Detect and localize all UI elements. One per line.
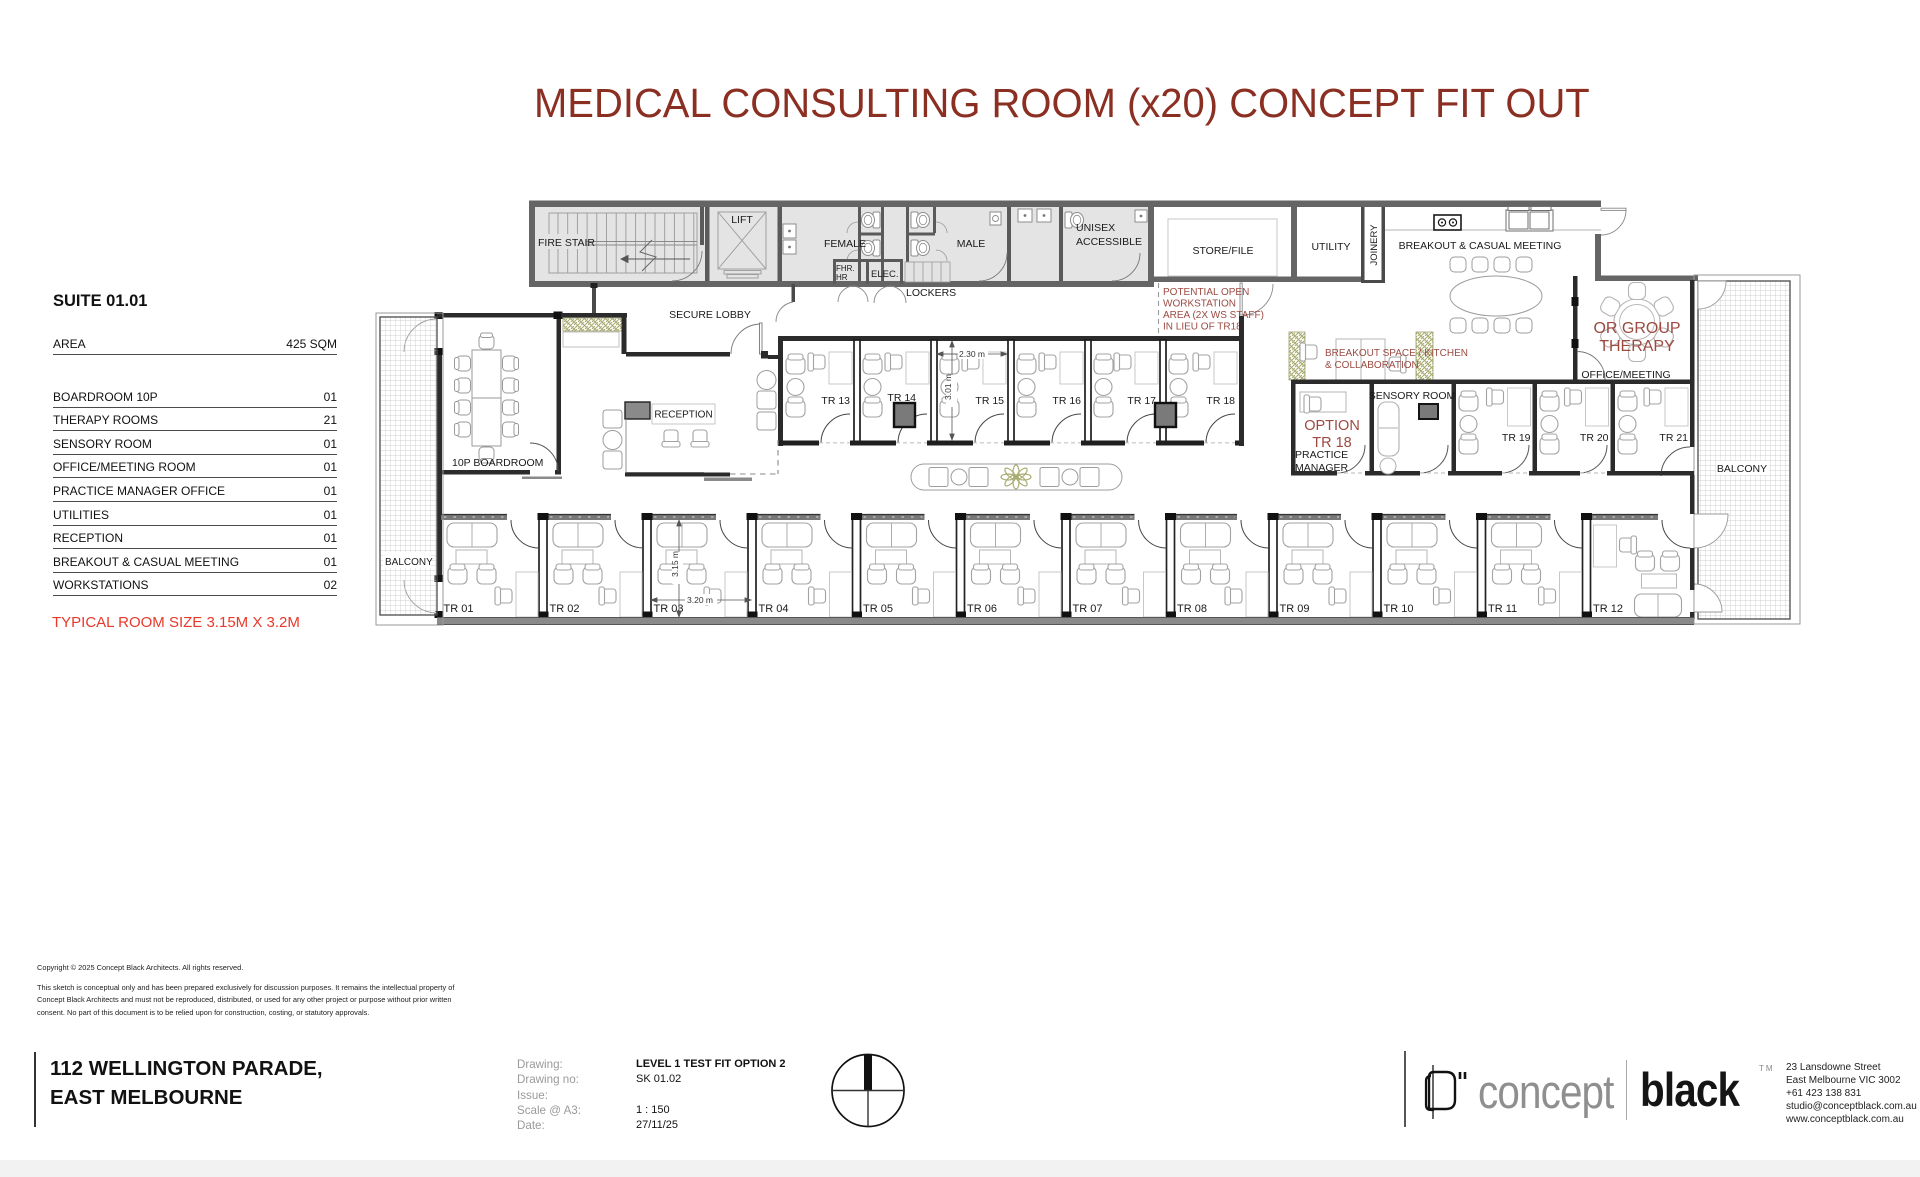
svg-text:BREAKOUT & CASUAL MEETING: BREAKOUT & CASUAL MEETING: [1399, 240, 1562, 252]
svg-text:SENSORY ROOM: SENSORY ROOM: [1369, 390, 1456, 402]
svg-text:TR 11: TR 11: [1488, 603, 1517, 615]
svg-text:MALE: MALE: [957, 238, 986, 250]
svg-text:TR 16: TR 16: [1052, 395, 1081, 407]
svg-text:UNISEX: UNISEX: [1076, 222, 1115, 234]
svg-text:ACCESSIBLE: ACCESSIBLE: [1076, 236, 1142, 248]
svg-text:JOINERY: JOINERY: [1369, 224, 1380, 266]
svg-text:OPTION: OPTION: [1304, 418, 1360, 434]
svg-text:TR 06: TR 06: [967, 603, 997, 615]
svg-text:OFFICE/MEETING: OFFICE/MEETING: [1581, 369, 1670, 381]
svg-text:PRACTICE: PRACTICE: [1295, 449, 1348, 461]
svg-text:TR 21: TR 21: [1659, 432, 1688, 444]
svg-text:TR 19: TR 19: [1502, 432, 1531, 444]
svg-text:BALCONY: BALCONY: [385, 557, 433, 568]
svg-text:LIFT: LIFT: [731, 214, 753, 226]
svg-text:BREAKOUT SPACE / KITCHEN: BREAKOUT SPACE / KITCHEN: [1325, 348, 1468, 359]
svg-text:FEMALE: FEMALE: [824, 238, 866, 250]
svg-text:UTILITY: UTILITY: [1311, 241, 1350, 253]
svg-text:TR 15: TR 15: [975, 395, 1004, 407]
svg-text:TR 07: TR 07: [1073, 603, 1103, 615]
svg-text:3.01 m: 3.01 m: [943, 374, 953, 400]
svg-text:AREA (2X WS STAFF): AREA (2X WS STAFF): [1163, 310, 1264, 321]
svg-text:TR 12: TR 12: [1593, 603, 1623, 615]
svg-text:TR 10: TR 10: [1384, 603, 1414, 615]
svg-text:TR 08: TR 08: [1177, 603, 1207, 615]
svg-text:& COLLABORATION: & COLLABORATION: [1325, 360, 1419, 371]
svg-text:THERAPY: THERAPY: [1599, 338, 1675, 355]
svg-text:3.20 m: 3.20 m: [687, 595, 713, 605]
svg-text:SECURE LOBBY: SECURE LOBBY: [669, 309, 751, 321]
svg-text:OR GROUP: OR GROUP: [1593, 320, 1680, 337]
svg-text:STORE/FILE: STORE/FILE: [1192, 245, 1253, 257]
svg-text:TR 01: TR 01: [444, 603, 474, 615]
svg-text:10P BOARDROOM: 10P BOARDROOM: [452, 457, 543, 469]
svg-text:WORKSTATION: WORKSTATION: [1163, 299, 1236, 310]
svg-text:TR 14: TR 14: [887, 392, 916, 404]
svg-text:TR 04: TR 04: [759, 603, 789, 615]
svg-text:TR 13: TR 13: [821, 395, 850, 407]
svg-text:BALCONY: BALCONY: [1717, 463, 1767, 475]
svg-text:POTENTIAL OPEN: POTENTIAL OPEN: [1163, 287, 1249, 298]
svg-text:TR 05: TR 05: [863, 603, 893, 615]
svg-text:IN LIEU OF TR18: IN LIEU OF TR18: [1163, 322, 1242, 333]
svg-text:HR: HR: [836, 273, 848, 282]
svg-text:TR 09: TR 09: [1280, 603, 1310, 615]
svg-text:TR 17: TR 17: [1127, 395, 1156, 407]
svg-text:FHR.: FHR.: [836, 264, 855, 273]
svg-text:LOCKERS: LOCKERS: [906, 287, 956, 299]
svg-text:TR 02: TR 02: [550, 603, 580, 615]
svg-text:TR 20: TR 20: [1580, 432, 1609, 444]
svg-text:FIRE STAIR: FIRE STAIR: [538, 237, 595, 249]
svg-text:3.15 m: 3.15 m: [670, 551, 680, 577]
svg-text:ELEC.: ELEC.: [871, 269, 898, 280]
svg-text:MANAGER: MANAGER: [1295, 462, 1349, 474]
svg-text:RECEPTION: RECEPTION: [654, 410, 712, 421]
svg-text:TR 18: TR 18: [1206, 395, 1235, 407]
svg-text:2.30 m: 2.30 m: [959, 349, 985, 359]
